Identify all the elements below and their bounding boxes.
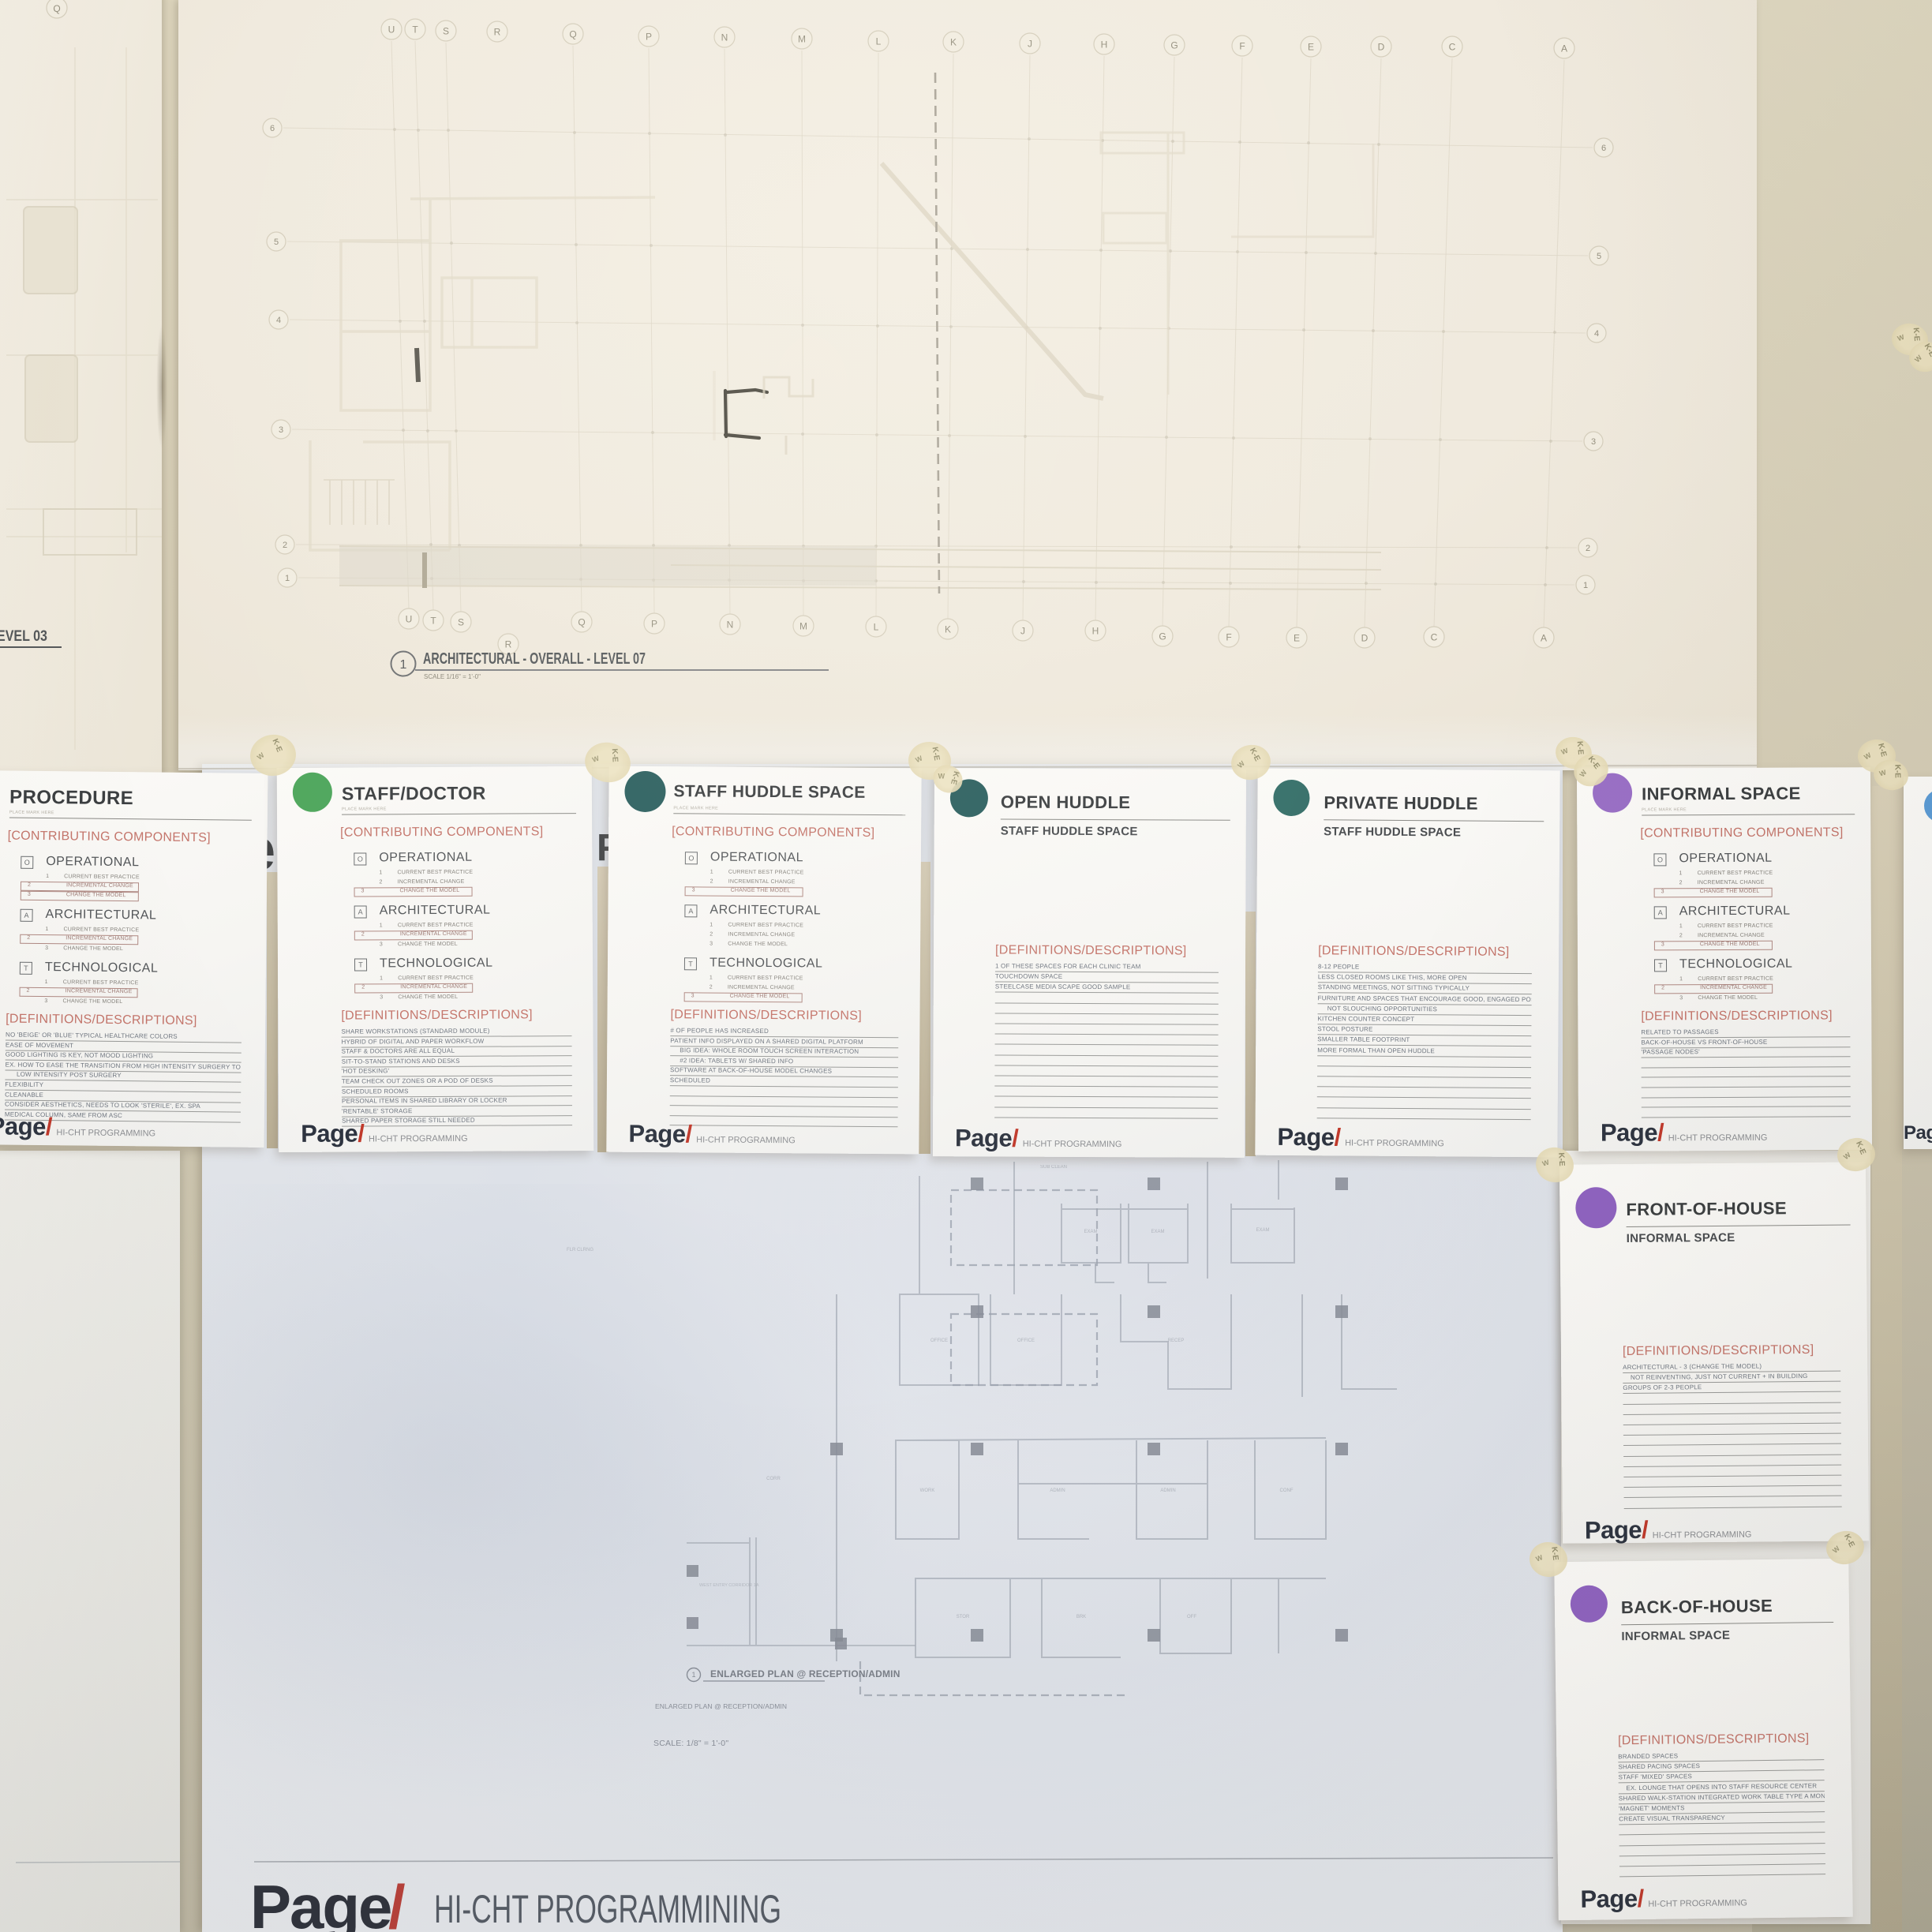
svg-text:OFFICE: OFFICE <box>1017 1339 1035 1343</box>
svg-text:K: K <box>950 36 957 47</box>
svg-text:D: D <box>1378 41 1385 52</box>
svg-text:E: E <box>1308 41 1314 52</box>
svg-text:R: R <box>494 26 501 37</box>
svg-text:C: C <box>1449 41 1456 52</box>
svg-text:6: 6 <box>1601 144 1606 153</box>
svg-text:K: K <box>945 623 951 635</box>
svg-text:OFF: OFF <box>1187 1615 1196 1619</box>
svg-text:M: M <box>798 33 806 44</box>
svg-text:T: T <box>412 24 418 35</box>
svg-text:R: R <box>505 638 512 650</box>
svg-text:S: S <box>443 25 449 36</box>
svg-text:H: H <box>1092 625 1099 636</box>
svg-text:4: 4 <box>276 316 281 325</box>
svg-text:P: P <box>651 618 657 629</box>
svg-text:ADMIN: ADMIN <box>1050 1488 1065 1493</box>
svg-text:J: J <box>1020 625 1025 636</box>
svg-text:L: L <box>874 621 879 632</box>
svg-text:1: 1 <box>285 574 290 583</box>
svg-text:HI-CHT PROGRAMMINING: HI-CHT PROGRAMMINING <box>434 1887 781 1931</box>
svg-text:Q: Q <box>569 28 576 39</box>
svg-text:F: F <box>1239 40 1245 51</box>
svg-text:1: 1 <box>1583 581 1588 590</box>
svg-text:RECEP: RECEP <box>1168 1339 1185 1343</box>
svg-text:2: 2 <box>283 541 287 550</box>
svg-text:D: D <box>1361 632 1368 643</box>
svg-text:STOR: STOR <box>957 1615 970 1619</box>
svg-text:A: A <box>1541 632 1547 643</box>
svg-text:CORR: CORR <box>766 1477 781 1481</box>
svg-text:M: M <box>799 620 807 631</box>
svg-text:EXAM: EXAM <box>1256 1228 1269 1233</box>
svg-text:ADMIN: ADMIN <box>1160 1488 1175 1493</box>
svg-text:6: 6 <box>270 124 275 133</box>
svg-text:FLR CLRNG: FLR CLRNG <box>567 1248 593 1252</box>
svg-text:WEST ENTRY CORRIDOR 1A: WEST ENTRY CORRIDOR 1A <box>699 1583 759 1588</box>
svg-text:CONF: CONF <box>1280 1488 1294 1493</box>
svg-text:A: A <box>1561 43 1567 54</box>
svg-text:1: 1 <box>400 658 407 672</box>
svg-text:G: G <box>1170 39 1178 51</box>
svg-text:2: 2 <box>1586 544 1590 553</box>
svg-text:5: 5 <box>274 238 279 247</box>
svg-text:EXAM: EXAM <box>1084 1230 1097 1234</box>
svg-text:U: U <box>406 613 413 624</box>
svg-text:P: P <box>646 31 652 42</box>
svg-text:SCALE: 1/8" = 1'-0": SCALE: 1/8" = 1'-0" <box>653 1739 728 1748</box>
svg-text:U: U <box>388 24 395 35</box>
svg-text:H: H <box>1101 39 1108 50</box>
svg-text:Q: Q <box>578 616 585 627</box>
svg-text:4: 4 <box>1594 329 1599 339</box>
svg-text:F: F <box>1226 631 1231 642</box>
svg-text:J: J <box>1028 38 1032 49</box>
svg-text:ENLARGED PLAN @ RECEPTION/ADMI: ENLARGED PLAN @ RECEPTION/ADMIN <box>710 1668 900 1679</box>
svg-text:C: C <box>1431 631 1438 642</box>
svg-text:SUB CLEAN: SUB CLEAN <box>1040 1165 1067 1170</box>
svg-text:5: 5 <box>1597 252 1601 261</box>
svg-text:ENLARGED PLAN @ RECEPTION/ADMI: ENLARGED PLAN @ RECEPTION/ADMIN <box>655 1702 787 1710</box>
svg-text:EXAM: EXAM <box>1151 1230 1164 1234</box>
svg-text:L: L <box>876 36 882 47</box>
svg-text:ARCHITECTURAL - OVERALL - LEVE: ARCHITECTURAL - OVERALL - LEVEL 07 <box>423 650 646 668</box>
svg-text:N: N <box>721 32 728 43</box>
svg-text:SCALE 1/16" = 1'-0": SCALE 1/16" = 1'-0" <box>424 673 481 680</box>
svg-text:EVEL 03: EVEL 03 <box>0 628 47 645</box>
svg-text:/: / <box>388 1872 406 1932</box>
svg-text:E: E <box>1294 632 1300 643</box>
svg-text:3: 3 <box>1591 437 1596 447</box>
svg-text:Page: Page <box>250 1872 391 1932</box>
svg-text:BRK: BRK <box>1076 1615 1086 1619</box>
svg-text:WORK: WORK <box>920 1488 935 1493</box>
svg-text:OFFICE: OFFICE <box>930 1339 948 1343</box>
svg-text:G: G <box>1159 631 1166 642</box>
svg-text:T: T <box>430 615 436 626</box>
svg-text:S: S <box>458 616 464 627</box>
svg-text:N: N <box>727 619 734 630</box>
svg-text:Q: Q <box>53 3 60 14</box>
svg-text:3: 3 <box>279 425 283 435</box>
svg-text:1: 1 <box>691 1671 695 1679</box>
